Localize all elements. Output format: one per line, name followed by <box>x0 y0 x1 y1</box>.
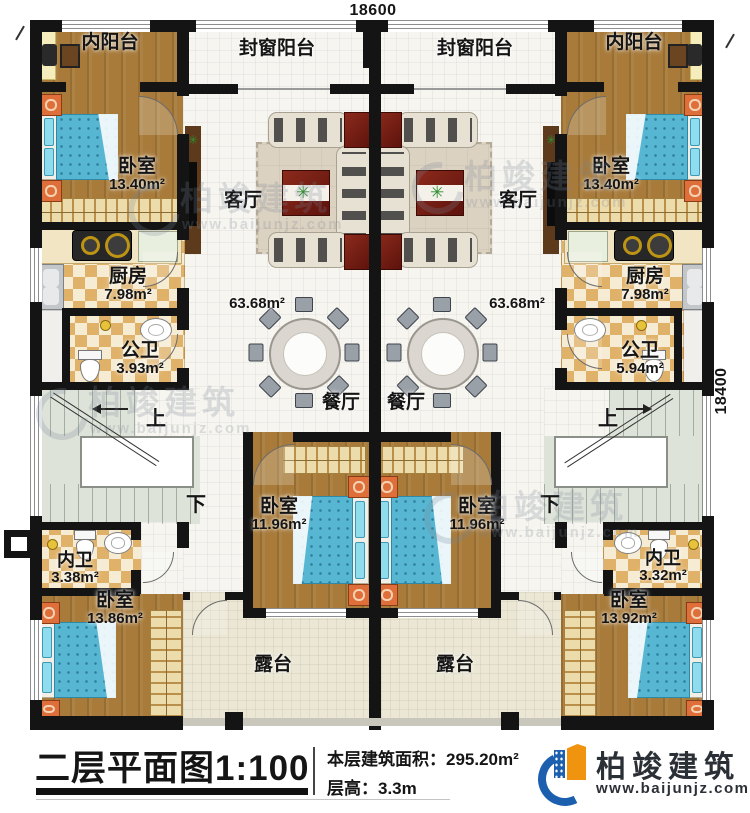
room-area: 7.98m² <box>600 287 690 304</box>
sliding-door <box>414 88 506 90</box>
plant-icon: ✳ <box>430 184 444 201</box>
room-area: 13.40m² <box>92 177 182 194</box>
floor-plan-canvas: 18600 18400 <box>0 0 750 813</box>
tv-icon <box>189 162 197 226</box>
room-area: 63.68m² <box>472 296 562 313</box>
wall <box>554 592 561 600</box>
room-name: 封窗阳台 <box>227 38 327 59</box>
room-name: 露台 <box>238 654 308 675</box>
living-area-left: 63.68m² <box>212 296 302 313</box>
wall <box>372 84 414 94</box>
sofa-icon <box>398 232 478 268</box>
room-name: 露台 <box>420 654 490 675</box>
room-name: 客厅 <box>208 190 278 211</box>
room-area: 7.98m² <box>83 287 173 304</box>
dining-table-left <box>269 318 341 390</box>
room-label-kitchen-right: 厨房 7.98m² <box>600 266 690 304</box>
wall <box>62 308 70 390</box>
window <box>702 248 714 302</box>
room-area: 63.68m² <box>212 296 302 313</box>
room-area: 11.96m² <box>234 517 324 534</box>
plan-title: 二层平面图1:100 <box>35 740 310 791</box>
room-name: 餐厅 <box>306 392 376 413</box>
window <box>62 20 150 32</box>
nightstand <box>348 584 370 606</box>
room-area: 5.94m² <box>595 361 685 378</box>
window <box>266 608 346 618</box>
room-name: 封窗阳台 <box>425 38 525 59</box>
room-label-bedroom-top-right: 卧室 13.40m² <box>566 156 656 194</box>
chair-icon <box>387 344 402 362</box>
room-name: 卧室 <box>234 496 324 517</box>
wall <box>131 522 141 540</box>
stair-direction-arrow <box>96 408 128 410</box>
room-label-enclosed-balcony-right: 封窗阳台 <box>425 38 525 59</box>
stove-icon <box>72 230 132 261</box>
room-label-inner-balcony-left: 内阳台 <box>70 32 150 53</box>
chair-icon <box>483 344 498 362</box>
stair-down-label-right: 下 <box>540 488 560 517</box>
stair-direction-arrow <box>616 408 648 410</box>
room-label-ensuite-right: 内卫 3.32m² <box>618 548 708 585</box>
plant-icon: ✳ <box>188 134 198 146</box>
wall <box>603 522 613 540</box>
room-label-bedroom-top-left: 卧室 13.40m² <box>92 156 182 194</box>
sofa-icon <box>268 232 348 268</box>
room-label-ensuite-left: 内卫 3.38m² <box>30 550 120 587</box>
room-name: 内卫 <box>30 550 120 570</box>
wall <box>555 20 567 96</box>
room-name: 卧室 <box>70 590 160 611</box>
brand-logo: 柏竣建筑 www.baijunjz.com <box>538 740 746 802</box>
room-label-public-bath-left: 公卫 3.93m² <box>95 340 185 378</box>
room-area: 13.92m² <box>584 611 674 628</box>
wall <box>177 20 189 96</box>
sofa-icon <box>268 112 348 148</box>
room-label-dining-right: 餐厅 <box>371 392 441 413</box>
room-area: 11.96m² <box>432 517 522 534</box>
stair-down-label-left: 下 <box>186 488 206 517</box>
wall <box>36 382 183 390</box>
room-label-terrace-right: 露台 <box>420 654 490 675</box>
room-name: 内阳台 <box>594 32 674 53</box>
room-label-bedroom-mid-right: 卧室 11.96m² <box>432 496 522 534</box>
wall <box>567 222 708 230</box>
room-label-dining-left: 餐厅 <box>306 392 376 413</box>
terrace-column <box>501 712 519 730</box>
room-label-bedroom-bottom-left: 卧室 13.86m² <box>70 590 160 628</box>
sofa-icon <box>398 112 478 148</box>
room-name: 厨房 <box>600 266 690 287</box>
stair-treads <box>544 484 708 524</box>
living-area-right: 63.68m² <box>472 296 562 313</box>
stair-up-label-right: 上 <box>598 402 618 431</box>
window <box>702 620 714 700</box>
sliding-door <box>238 88 330 90</box>
room-label-public-bath-right: 公卫 5.94m² <box>595 340 685 378</box>
room-label-inner-balcony-right: 内阳台 <box>594 32 674 53</box>
dimension-top: 18600 <box>318 2 428 20</box>
balcony-decor-dark-right <box>687 44 702 66</box>
nightstand <box>40 180 62 202</box>
window <box>196 20 356 32</box>
room-name: 厨房 <box>83 266 173 287</box>
window <box>30 396 42 516</box>
brand-logo-swoosh-icon <box>531 745 599 813</box>
nightstand <box>348 476 370 498</box>
wall <box>36 222 177 230</box>
room-name: 卧室 <box>432 496 522 517</box>
chair-icon <box>433 297 451 312</box>
wall <box>189 84 238 94</box>
wall <box>561 308 682 316</box>
bed-bottom-left <box>38 622 116 698</box>
room-name: 卧室 <box>92 156 182 177</box>
balcony-decor-dark-left <box>42 44 57 66</box>
room-label-terrace-left: 露台 <box>238 654 308 675</box>
wall <box>62 308 183 316</box>
wall <box>225 592 243 600</box>
dimension-tick-right <box>725 34 735 49</box>
wall-exterior-bottom-left <box>30 716 183 730</box>
room-name: 公卫 <box>95 340 185 361</box>
wall <box>561 382 708 390</box>
room-area: 3.32m² <box>618 568 708 585</box>
wall <box>372 432 451 442</box>
room-name: 卧室 <box>584 590 674 611</box>
window <box>30 248 42 302</box>
window <box>30 620 42 700</box>
room-label-bedroom-mid-left: 卧室 11.96m² <box>234 496 324 534</box>
title-underline-thick <box>36 788 308 795</box>
room-label-living-right: 客厅 <box>483 190 553 211</box>
terrace-column <box>225 712 243 730</box>
shower-icon <box>636 320 647 331</box>
brand-logo-building-blue-icon <box>554 750 565 778</box>
wall <box>183 592 190 600</box>
plant-icon: ✳ <box>296 184 310 201</box>
room-name: 客厅 <box>483 190 553 211</box>
side-table-icon <box>344 112 372 148</box>
dimension-tick-left <box>15 26 25 41</box>
room-label-living-left: 客厅 <box>208 190 278 211</box>
window <box>388 20 548 32</box>
brand-logo-building-orange-icon <box>567 744 586 780</box>
room-name: 餐厅 <box>371 392 441 413</box>
bed-headboard <box>351 496 369 584</box>
stair-landing-left <box>80 436 194 488</box>
chair-icon <box>345 344 360 362</box>
stair-treads <box>36 484 200 524</box>
window <box>398 608 478 618</box>
wall <box>36 522 141 530</box>
room-area: 13.86m² <box>70 611 160 628</box>
window <box>594 20 682 32</box>
wall <box>506 84 555 94</box>
wall <box>603 522 708 530</box>
wall-exterior-bottom-right <box>561 716 714 730</box>
shower-icon <box>100 320 111 331</box>
room-label-kitchen-left: 厨房 7.98m² <box>83 266 173 304</box>
floor-stair-entry-left <box>135 388 200 436</box>
wall <box>555 522 567 548</box>
title-divider <box>313 747 315 795</box>
room-area: 3.38m² <box>30 570 120 587</box>
wardrobe-mid-left <box>282 446 366 474</box>
dining-table-right <box>407 318 479 390</box>
chair-icon <box>249 344 264 362</box>
wall <box>293 432 372 442</box>
room-name: 内阳台 <box>70 32 150 53</box>
wall <box>678 82 708 92</box>
wall-center <box>369 20 381 730</box>
wall <box>330 84 372 94</box>
floor-height-text: 层高：3.3m <box>327 774 417 799</box>
wall <box>36 82 66 92</box>
room-area: 13.40m² <box>566 177 656 194</box>
stove-icon <box>614 230 674 261</box>
room-name: 内卫 <box>618 548 708 568</box>
side-table-icon <box>344 234 372 270</box>
brand-url: www.baijunjz.com <box>596 780 749 797</box>
wall <box>177 522 189 548</box>
shower-icon <box>47 539 58 550</box>
bed-bottom-right <box>628 622 706 698</box>
room-name: 卧室 <box>566 156 656 177</box>
floor-area-text: 本层建筑面积：295.20m² <box>327 745 519 770</box>
title-underline-thin <box>36 799 450 800</box>
room-label-enclosed-balcony-left: 封窗阳台 <box>227 38 327 59</box>
stair-up-label-left: 上 <box>146 402 166 431</box>
room-name: 公卫 <box>595 340 685 361</box>
wall <box>501 592 519 600</box>
dimension-right: 18400 <box>713 351 731 431</box>
room-label-bedroom-bottom-right: 卧室 13.92m² <box>584 590 674 628</box>
nightstand <box>40 94 62 116</box>
wall <box>561 82 604 92</box>
room-area: 3.93m² <box>95 361 185 378</box>
